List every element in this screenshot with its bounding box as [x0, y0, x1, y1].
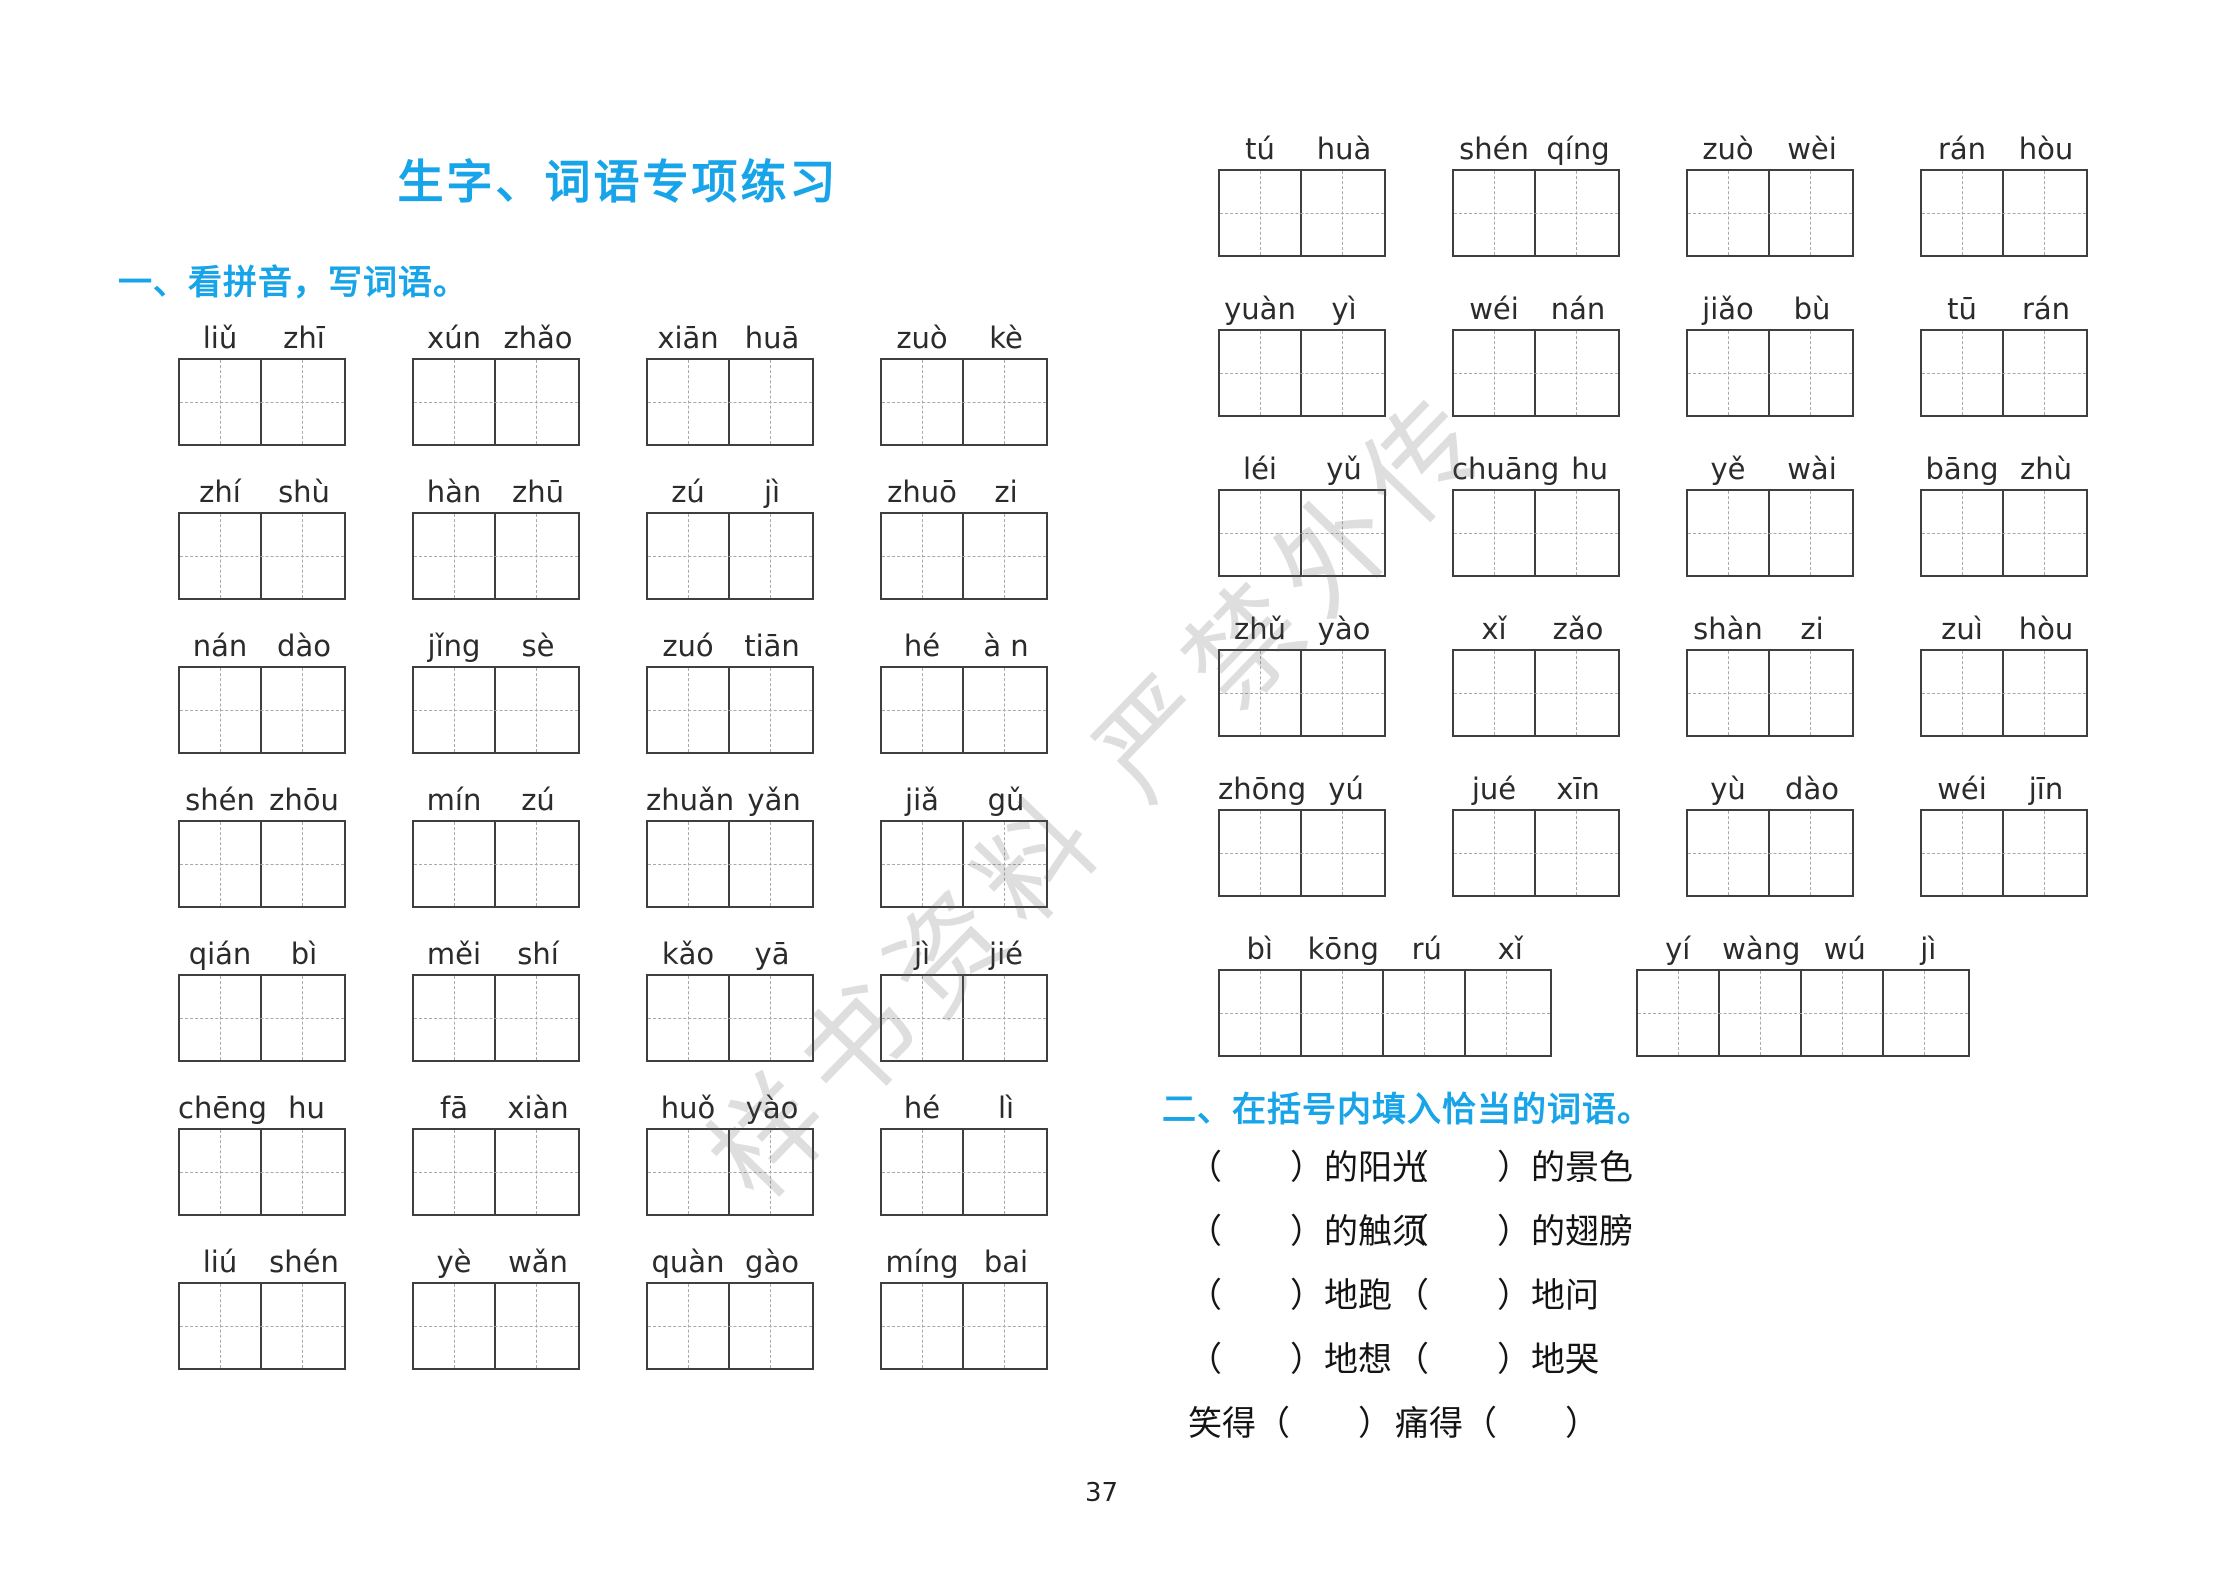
writing-box	[880, 820, 1048, 908]
pinyin-label: juéxīn	[1452, 764, 1620, 806]
writing-cell	[1220, 811, 1300, 895]
pinyin-syllable: zhǔ	[1218, 612, 1302, 646]
writing-cell	[1922, 811, 2002, 895]
pinyin-word-group: wéijīn	[1920, 764, 2088, 924]
pinyin-label: shànzi	[1686, 604, 1854, 646]
writing-cell	[648, 1284, 728, 1368]
pinyin-label: shénqíng	[1452, 124, 1620, 166]
writing-cell	[648, 976, 728, 1060]
pinyin-word-group: túhuà	[1218, 124, 1386, 284]
writing-cell	[882, 822, 962, 906]
pinyin-syllable: liǔ	[178, 321, 262, 355]
writing-cell	[180, 360, 260, 444]
fill-in-row: （ ）地跑（ ）地问	[1188, 1268, 1888, 1332]
writing-cell	[1638, 971, 1718, 1055]
pinyin-syllable: yì	[1302, 292, 1386, 326]
writing-box	[1920, 329, 2088, 417]
pinyin-word-group: míngbai	[880, 1237, 1048, 1391]
pinyin-word-group: bāngzhù	[1920, 444, 2088, 604]
pinyin-syllable: xiān	[646, 321, 730, 355]
pinyin-word-group: zuòwèi	[1686, 124, 1854, 284]
writing-cell	[180, 1284, 260, 1368]
writing-cell	[1922, 651, 2002, 735]
pinyin-label: qiánbì	[178, 929, 346, 971]
pinyin-idiom-group: yíwàngwújì	[1636, 924, 1970, 1057]
pinyin-syllable: nán	[178, 629, 262, 663]
writing-box	[646, 666, 814, 754]
pinyin-label: bāngzhù	[1920, 444, 2088, 486]
pinyin-syllable: zú	[496, 783, 580, 817]
fill-in-blank-left: （ ）的触须	[1188, 1204, 1426, 1253]
writing-cell	[1220, 331, 1300, 415]
writing-cell	[728, 822, 810, 906]
writing-box	[1686, 649, 1854, 737]
writing-cell	[1922, 491, 2002, 575]
pinyin-syllable: yù	[1686, 772, 1770, 806]
pinyin-syllable: kōng	[1302, 932, 1386, 966]
writing-cell	[1220, 971, 1300, 1055]
pinyin-label: liúshén	[178, 1237, 346, 1279]
writing-cell	[1220, 171, 1300, 255]
pinyin-syllable: fā	[412, 1091, 496, 1125]
pinyin-syllable: léi	[1218, 452, 1302, 486]
writing-box	[178, 974, 346, 1062]
writing-cell	[494, 1130, 576, 1214]
writing-box	[646, 358, 814, 446]
pinyin-syllable: tiān	[730, 629, 814, 663]
pinyin-syllable: jiǎo	[1686, 292, 1770, 326]
pinyin-syllable: lì	[964, 1091, 1048, 1125]
writing-cell	[1534, 651, 1616, 735]
pinyin-word-group: ránhòu	[1920, 124, 2088, 284]
pinyin-syllable: zuì	[1920, 612, 2004, 646]
writing-box	[646, 1128, 814, 1216]
writing-cell	[1688, 491, 1768, 575]
pinyin-syllable: qián	[178, 937, 262, 971]
writing-cell	[1454, 171, 1534, 255]
pinyin-syllable: jì	[880, 937, 964, 971]
writing-box	[1686, 169, 1854, 257]
pinyin-label: hélì	[880, 1083, 1048, 1125]
pinyin-syllable: zuò	[880, 321, 964, 355]
pinyin-syllable: hòu	[2004, 612, 2088, 646]
pinyin-syllable: à n	[964, 629, 1048, 663]
pinyin-label: xúnzhǎo	[412, 313, 580, 355]
writing-cell	[1300, 651, 1382, 735]
pinyin-label: xǐzǎo	[1452, 604, 1620, 646]
pinyin-label: zuòkè	[880, 313, 1048, 355]
writing-cell	[260, 822, 342, 906]
fill-in-blank-right: （ ）的翅膀	[1395, 1204, 1633, 1253]
pinyin-word-group: nándào	[178, 621, 346, 775]
pinyin-syllable: huà	[1302, 132, 1386, 166]
pinyin-label: jǐngsè	[412, 621, 580, 663]
fill-in-blank-left: （ ）地跑	[1188, 1268, 1392, 1317]
pinyin-word-group: zújì	[646, 467, 814, 621]
pinyin-syllable: zhū	[496, 475, 580, 509]
pinyin-syllable: shù	[262, 475, 346, 509]
pinyin-syllable: jì	[730, 475, 814, 509]
pinyin-word-group: zuótiān	[646, 621, 814, 775]
writing-cell	[728, 514, 810, 598]
pinyin-syllable: yě	[1686, 452, 1770, 486]
writing-cell	[414, 668, 494, 752]
section-one-heading: 一、看拼音，写词语。	[118, 255, 468, 304]
pinyin-syllable: kǎo	[646, 937, 730, 971]
pinyin-word-group: měishí	[412, 929, 580, 1083]
pinyin-syllable: huǒ	[646, 1091, 730, 1125]
fill-in-blank-right: 痛得（ ）	[1395, 1396, 1599, 1445]
pinyin-syllable: zuò	[1686, 132, 1770, 166]
pinyin-label: wéinán	[1452, 284, 1620, 326]
writing-cell	[882, 1130, 962, 1214]
writing-cell	[414, 822, 494, 906]
writing-cell	[1534, 491, 1616, 575]
pinyin-label: liǔzhī	[178, 313, 346, 355]
writing-box	[178, 666, 346, 754]
pinyin-syllable: hu	[1559, 452, 1620, 486]
pinyin-label: yùdào	[1686, 764, 1854, 806]
pinyin-syllable: yí	[1636, 932, 1720, 966]
writing-cell	[962, 668, 1044, 752]
pinyin-word-group: chuānghu	[1452, 444, 1620, 604]
pinyin-label: ránhòu	[1920, 124, 2088, 166]
pinyin-syllable: chuāng	[1452, 452, 1559, 486]
writing-cell	[1800, 971, 1882, 1055]
writing-cell	[962, 976, 1044, 1060]
pinyin-syllable: bì	[1218, 932, 1302, 966]
writing-cell	[728, 360, 810, 444]
pinyin-syllable: zhǎo	[496, 321, 580, 355]
fill-in-rows: （ ）的阳光（ ）的景色（ ）的触须（ ）的翅膀（ ）地跑（ ）地问（ ）地想（…	[1188, 1140, 1888, 1460]
writing-cell	[414, 1130, 494, 1214]
pinyin-syllable: kè	[964, 321, 1048, 355]
writing-cell	[494, 360, 576, 444]
pinyin-syllable: rán	[2004, 292, 2088, 326]
pinyin-syllable: bai	[964, 1245, 1048, 1279]
writing-cell	[1768, 171, 1850, 255]
writing-cell	[882, 360, 962, 444]
writing-cell	[1454, 331, 1534, 415]
writing-cell	[882, 1284, 962, 1368]
pinyin-label: chuānghu	[1452, 444, 1620, 486]
writing-box	[1686, 329, 1854, 417]
writing-box	[646, 820, 814, 908]
writing-cell	[1220, 491, 1300, 575]
writing-cell	[260, 1284, 342, 1368]
writing-box	[178, 820, 346, 908]
pinyin-word-group: zhǔyào	[1218, 604, 1386, 764]
writing-box	[1218, 809, 1386, 897]
pinyin-syllable: shí	[496, 937, 580, 971]
writing-box	[646, 1282, 814, 1370]
pinyin-syllable: jué	[1452, 772, 1536, 806]
pinyin-syllable: wǎn	[496, 1245, 580, 1279]
writing-cell	[882, 514, 962, 598]
pinyin-word-group: jìjié	[880, 929, 1048, 1083]
pinyin-word-group: tūrán	[1920, 284, 2088, 444]
pinyin-label: yíwàngwújì	[1636, 924, 1970, 966]
pinyin-word-group: jiǎobù	[1686, 284, 1854, 444]
pinyin-syllable: sè	[496, 629, 580, 663]
pinyin-word-group: liúshén	[178, 1237, 346, 1391]
pinyin-word-group: quàngào	[646, 1237, 814, 1391]
writing-cell	[414, 514, 494, 598]
writing-cell	[1718, 971, 1800, 1055]
pinyin-label: zhíshù	[178, 467, 346, 509]
pinyin-syllable: gào	[730, 1245, 814, 1279]
writing-box	[880, 974, 1048, 1062]
writing-cell	[1464, 971, 1546, 1055]
pinyin-label: yěwài	[1686, 444, 1854, 486]
pinyin-syllable: xún	[412, 321, 496, 355]
pinyin-label: měishí	[412, 929, 580, 971]
writing-box	[1452, 809, 1620, 897]
pinyin-label: jìjié	[880, 929, 1048, 971]
pinyin-syllable: hòu	[2004, 132, 2088, 166]
pinyin-label: zújì	[646, 467, 814, 509]
pinyin-word-group: hélì	[880, 1083, 1048, 1237]
writing-cell	[1688, 171, 1768, 255]
pinyin-syllable: zi	[1770, 612, 1854, 646]
writing-cell	[1882, 971, 1964, 1055]
writing-box	[412, 512, 580, 600]
writing-cell	[1768, 491, 1850, 575]
pinyin-label: léiyǔ	[1218, 444, 1386, 486]
writing-cell	[1768, 331, 1850, 415]
writing-cell	[728, 1130, 810, 1214]
pinyin-label: yuànyì	[1218, 284, 1386, 326]
pinyin-label: chēnghu	[178, 1083, 346, 1125]
fill-in-blank-left: （ ）地想	[1188, 1332, 1392, 1381]
pinyin-syllable: zhù	[2004, 452, 2088, 486]
writing-cell	[1300, 331, 1382, 415]
writing-cell	[494, 514, 576, 598]
writing-cell	[1768, 811, 1850, 895]
writing-cell	[494, 1284, 576, 1368]
pinyin-syllable: yào	[1302, 612, 1386, 646]
writing-cell	[648, 668, 728, 752]
pinyin-label: shénzhōu	[178, 775, 346, 817]
pinyin-word-group: liǔzhī	[178, 313, 346, 467]
writing-cell	[414, 360, 494, 444]
pinyin-syllable: jǐng	[412, 629, 496, 663]
pinyin-idiom-row: bìkōngrúxǐyíwàngwújì	[1218, 924, 1970, 1057]
pinyin-word-group: fāxiàn	[412, 1083, 580, 1237]
pinyin-label: jiǎgǔ	[880, 775, 1048, 817]
pinyin-syllable: jiǎ	[880, 783, 964, 817]
pinyin-label: tūrán	[1920, 284, 2088, 326]
writing-cell	[260, 360, 342, 444]
writing-cell	[1534, 811, 1616, 895]
writing-cell	[962, 514, 1044, 598]
pinyin-syllable: yè	[412, 1245, 496, 1279]
pinyin-label: xiānhuā	[646, 313, 814, 355]
writing-box	[1452, 169, 1620, 257]
writing-cell	[1300, 171, 1382, 255]
pinyin-syllable: yā	[730, 937, 814, 971]
fill-in-row: （ ）地想（ ）地哭	[1188, 1332, 1888, 1396]
worksheet-page: 生字、词语专项练习 一、看拼音，写词语。 liǔzhīxúnzhǎoxiānhu…	[0, 0, 2220, 1571]
pinyin-syllable: zhī	[262, 321, 346, 355]
pinyin-syllable: zhōng	[1218, 772, 1306, 806]
pinyin-word-group: zhōngyú	[1218, 764, 1386, 924]
writing-box	[1452, 329, 1620, 417]
pinyin-label: huǒyào	[646, 1083, 814, 1125]
pinyin-word-group: kǎoyā	[646, 929, 814, 1083]
pinyin-syllable: shén	[1452, 132, 1536, 166]
pinyin-syllable: shàn	[1686, 612, 1770, 646]
writing-box	[178, 358, 346, 446]
pinyin-syllable: liú	[178, 1245, 262, 1279]
fill-in-blank-right: （ ）地问	[1395, 1268, 1599, 1317]
pinyin-syllable: wàng	[1720, 932, 1804, 966]
writing-box	[1218, 329, 1386, 417]
fill-in-blank-left: （ ）的阳光	[1188, 1140, 1426, 1189]
pinyin-syllable: wéi	[1452, 292, 1536, 326]
section-two-heading: 二、在括号内填入恰当的词语。	[1162, 1082, 1652, 1131]
pinyin-syllable: quàn	[646, 1245, 730, 1279]
writing-box	[1920, 169, 2088, 257]
pinyin-word-group: yuànyì	[1218, 284, 1386, 444]
pinyin-label: yèwǎn	[412, 1237, 580, 1279]
pinyin-syllable: yǎn	[734, 783, 814, 817]
pinyin-label: zuótiān	[646, 621, 814, 663]
pinyin-syllable: yào	[730, 1091, 814, 1125]
pinyin-syllable: hàn	[412, 475, 496, 509]
writing-cell	[728, 668, 810, 752]
pinyin-syllable: gǔ	[964, 783, 1048, 817]
writing-cell	[260, 1130, 342, 1214]
writing-box	[412, 820, 580, 908]
writing-box	[1218, 649, 1386, 737]
pinyin-syllable: tū	[1920, 292, 2004, 326]
pinyin-syllable: rú	[1385, 932, 1469, 966]
writing-cell	[1454, 651, 1534, 735]
pinyin-word-grid-right: túhuàshénqíngzuòwèiránhòuyuànyìwéinánjiǎ…	[1218, 124, 2154, 924]
pinyin-label: zhōngyú	[1218, 764, 1386, 806]
writing-cell	[1454, 811, 1534, 895]
writing-cell	[728, 1284, 810, 1368]
writing-box	[880, 1128, 1048, 1216]
writing-cell	[1382, 971, 1464, 1055]
pinyin-word-group: hànzhū	[412, 467, 580, 621]
pinyin-syllable: shén	[262, 1245, 346, 1279]
writing-cell	[962, 822, 1044, 906]
writing-cell	[414, 976, 494, 1060]
writing-cell	[962, 360, 1044, 444]
writing-box	[178, 512, 346, 600]
pinyin-syllable: hé	[880, 1091, 964, 1125]
writing-cell	[648, 1130, 728, 1214]
writing-cell	[1922, 171, 2002, 255]
pinyin-syllable: bì	[262, 937, 346, 971]
pinyin-syllable: wéi	[1920, 772, 2004, 806]
writing-cell	[1688, 651, 1768, 735]
writing-cell	[180, 822, 260, 906]
pinyin-word-group: juéxīn	[1452, 764, 1620, 924]
writing-cell	[2002, 651, 2084, 735]
writing-cell	[1300, 971, 1382, 1055]
pinyin-syllable: jì	[1887, 932, 1971, 966]
pinyin-syllable: zi	[964, 475, 1048, 509]
pinyin-syllable: zhuō	[880, 475, 964, 509]
pinyin-word-group: shànzi	[1686, 604, 1854, 764]
writing-box	[1920, 489, 2088, 577]
pinyin-syllable: bāng	[1920, 452, 2004, 486]
pinyin-syllable: xīn	[1536, 772, 1620, 806]
pinyin-idiom-group: bìkōngrúxǐ	[1218, 924, 1552, 1057]
writing-box	[412, 974, 580, 1062]
pinyin-word-group: jiǎgǔ	[880, 775, 1048, 929]
pinyin-syllable: xǐ	[1469, 932, 1553, 966]
pinyin-word-group: zuòkè	[880, 313, 1048, 467]
pinyin-label: fāxiàn	[412, 1083, 580, 1125]
pinyin-label: zuìhòu	[1920, 604, 2088, 646]
pinyin-syllable: yǔ	[1302, 452, 1386, 486]
writing-cell	[180, 1130, 260, 1214]
pinyin-word-group: yěwài	[1686, 444, 1854, 604]
pinyin-word-group: wéinán	[1452, 284, 1620, 444]
writing-box	[1920, 809, 2088, 897]
fill-in-row: 笑得（ ）痛得（ ）	[1188, 1396, 1888, 1460]
pinyin-label: zhǔyào	[1218, 604, 1386, 646]
fill-in-blank-right: （ ）地哭	[1395, 1332, 1599, 1381]
pinyin-syllable: wú	[1803, 932, 1887, 966]
writing-cell	[494, 976, 576, 1060]
writing-cell	[414, 1284, 494, 1368]
pinyin-syllable: jié	[964, 937, 1048, 971]
pinyin-syllable: wèi	[1770, 132, 1854, 166]
writing-cell	[1300, 491, 1382, 575]
pinyin-word-group: héà n	[880, 621, 1048, 775]
pinyin-syllable: yuàn	[1218, 292, 1302, 326]
pinyin-syllable: dào	[262, 629, 346, 663]
pinyin-label: wéijīn	[1920, 764, 2088, 806]
pinyin-label: nándào	[178, 621, 346, 663]
pinyin-syllable: měi	[412, 937, 496, 971]
writing-cell	[648, 514, 728, 598]
pinyin-syllable: zú	[646, 475, 730, 509]
pinyin-label: zuòwèi	[1686, 124, 1854, 166]
writing-cell	[1454, 491, 1534, 575]
writing-cell	[1688, 811, 1768, 895]
pinyin-syllable: nán	[1536, 292, 1620, 326]
writing-cell	[648, 822, 728, 906]
writing-box	[1452, 649, 1620, 737]
writing-cell	[2002, 171, 2084, 255]
writing-box	[1920, 649, 2088, 737]
pinyin-word-group: xiānhuā	[646, 313, 814, 467]
writing-box	[1686, 489, 1854, 577]
pinyin-label: zhuōzi	[880, 467, 1048, 509]
writing-box	[1218, 489, 1386, 577]
pinyin-syllable: dào	[1770, 772, 1854, 806]
pinyin-word-group: chēnghu	[178, 1083, 346, 1237]
writing-cell	[260, 514, 342, 598]
pinyin-word-group: yùdào	[1686, 764, 1854, 924]
writing-cell	[962, 1130, 1044, 1214]
writing-cell	[648, 360, 728, 444]
pinyin-label: bìkōngrúxǐ	[1218, 924, 1552, 966]
writing-cell	[260, 976, 342, 1060]
writing-cell	[882, 668, 962, 752]
writing-box	[178, 1282, 346, 1370]
pinyin-label: mínzú	[412, 775, 580, 817]
pinyin-label: kǎoyā	[646, 929, 814, 971]
pinyin-label: míngbai	[880, 1237, 1048, 1279]
pinyin-word-group: qiánbì	[178, 929, 346, 1083]
